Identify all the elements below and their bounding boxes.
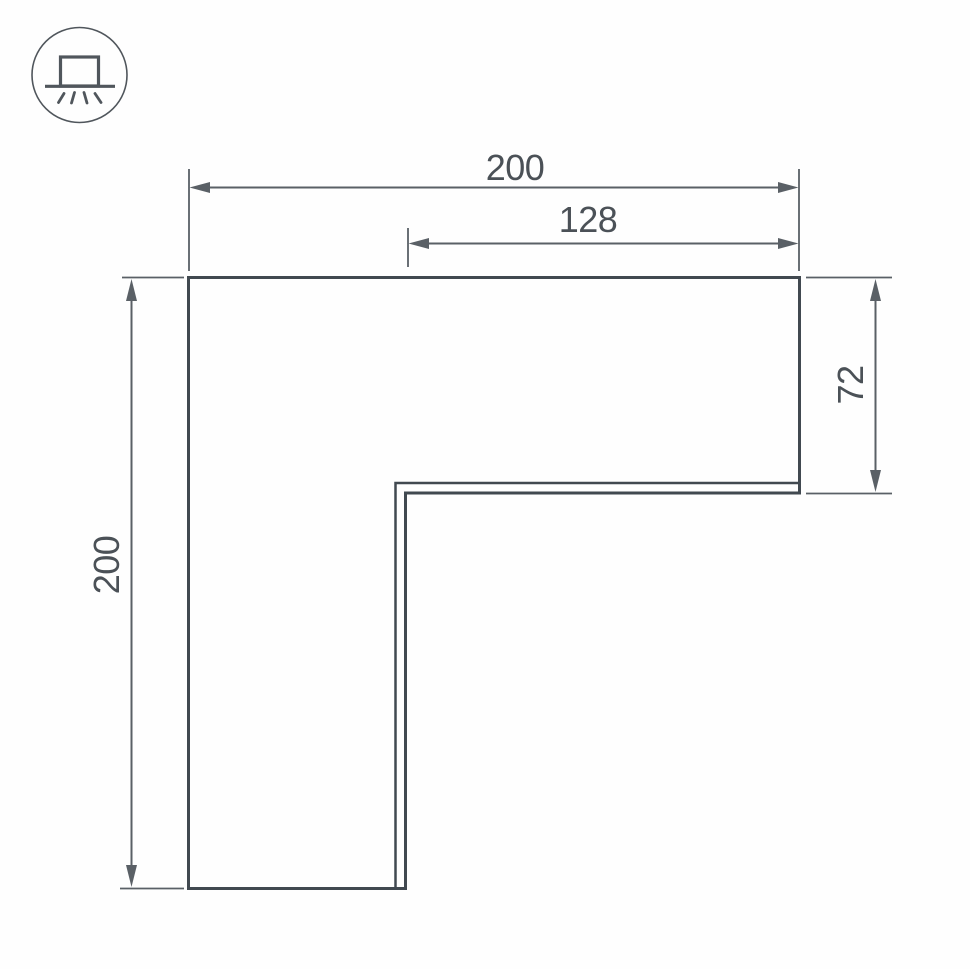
icon-light-rays <box>59 93 102 104</box>
light-ray <box>72 93 75 104</box>
arrowhead-up-icon <box>126 279 137 301</box>
dimension-top-inner-width: 128 <box>408 199 799 267</box>
dimension-label-left-height: 200 <box>86 536 127 595</box>
arrowhead-left-icon <box>409 238 430 249</box>
l-profile-dimension-drawing: 200 128 72 200 <box>0 0 970 969</box>
arrowhead-right-icon <box>778 182 799 193</box>
profile-outline <box>189 278 800 889</box>
arrowhead-left-icon <box>190 182 211 193</box>
dimension-label-inner-width: 128 <box>559 199 618 240</box>
dimension-right-height: 72 <box>806 278 892 494</box>
profile-groove-line <box>396 483 800 888</box>
arrowhead-up-icon <box>870 279 881 301</box>
light-ray <box>95 94 101 103</box>
dimension-top-width: 200 <box>189 147 799 271</box>
dimension-left-height: 200 <box>86 278 184 889</box>
l-profile-shape <box>189 278 800 889</box>
dimension-label-right-height: 72 <box>830 365 871 404</box>
icon-circle-border <box>32 28 127 123</box>
dimension-label-top-width: 200 <box>486 147 545 188</box>
light-ray <box>84 93 87 104</box>
arrowhead-down-icon <box>870 470 881 492</box>
arrowhead-down-icon <box>126 865 137 887</box>
icon-fixture-body <box>61 57 99 86</box>
technical-drawing-page: 200 128 72 200 <box>0 0 970 969</box>
arrowhead-right-icon <box>778 238 799 249</box>
surface-mounted-light-icon <box>32 28 127 123</box>
light-ray <box>59 94 65 103</box>
